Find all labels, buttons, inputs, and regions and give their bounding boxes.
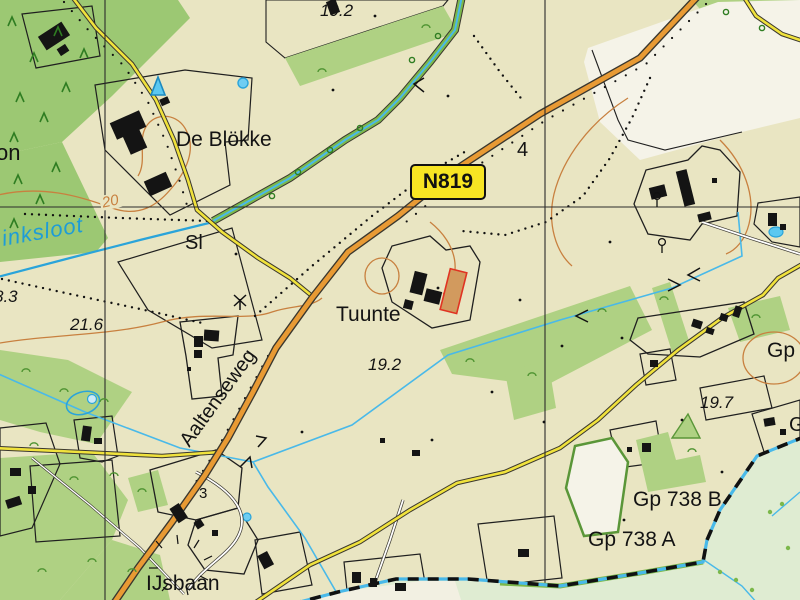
road-sign-n819: N819 [410,164,486,200]
grid-number-label: 4 [517,140,528,160]
spot-height-label: 19.2 [320,2,353,19]
spot-height-label: 8.3 [0,288,18,305]
contour-value-label: 20 [99,192,122,211]
abbrev-label-sl: Sl [185,233,203,253]
house-number-label: 3 [199,486,207,501]
spot-height-label: 21.6 [70,316,103,333]
place-label-de-blokke: De Blökke [176,129,272,150]
place-label-tuunte: Tuunte [336,304,401,325]
boundary-marker-label-738a: Gp 738 A [588,529,676,550]
boundary-marker-label-738b: Gp 738 B [633,489,722,510]
topographic-map[interactable]: 19.2 De Blökke N819 4 on inksloot Sl 8.3… [0,0,800,600]
place-label-partial-on: on [0,142,20,164]
spot-height-label: 19.7 [700,394,733,411]
boundary-marker-label-gp: Gp [767,340,795,361]
boundary-marker-label-partial: G [789,415,800,435]
place-label-ijsbaan: IJsbaan [146,573,220,594]
spot-height-label: 19.2 [368,356,401,373]
